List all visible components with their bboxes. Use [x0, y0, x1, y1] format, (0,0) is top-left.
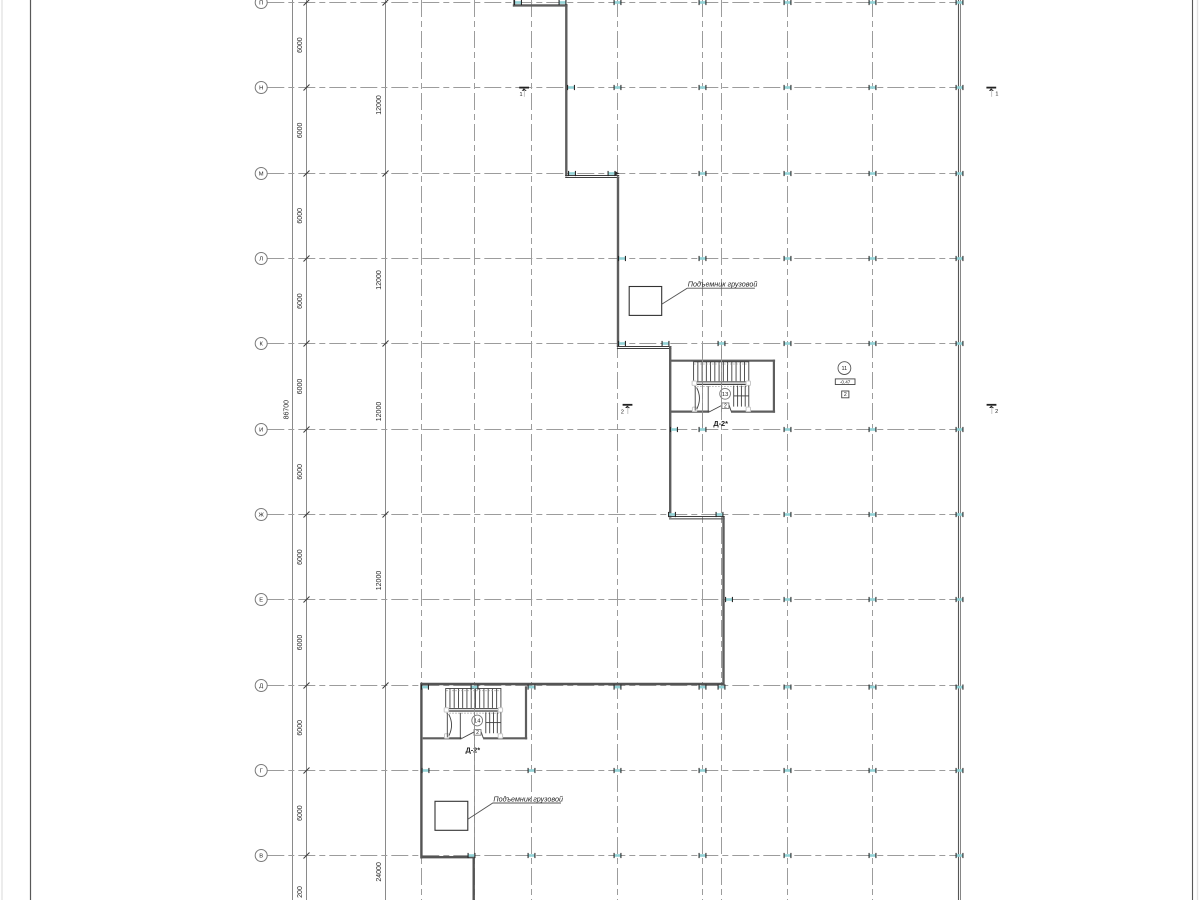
svg-text:11: 11 — [842, 366, 848, 372]
svg-text:И: И — [259, 428, 263, 434]
svg-text:6000: 6000 — [297, 720, 304, 736]
svg-text:Н: Н — [259, 86, 263, 92]
svg-text:86700: 86700 — [283, 400, 290, 420]
svg-text:2: 2 — [995, 409, 998, 415]
svg-text:Ж: Ж — [259, 513, 265, 519]
svg-text:24000: 24000 — [376, 862, 383, 882]
svg-text:2: 2 — [844, 392, 847, 398]
svg-text:-0.47: -0.47 — [840, 379, 851, 384]
svg-text:Подъемник грузовой: Подъемник грузовой — [493, 794, 563, 803]
svg-text:Д-2*: Д-2* — [465, 746, 480, 755]
svg-text:13: 13 — [722, 392, 728, 398]
svg-text:2: 2 — [724, 404, 727, 410]
svg-text:6000: 6000 — [297, 635, 304, 651]
svg-text:12000: 12000 — [376, 270, 383, 290]
svg-text:2: 2 — [621, 409, 624, 415]
svg-text:Д-2*: Д-2* — [713, 419, 728, 428]
svg-text:12000: 12000 — [376, 402, 383, 422]
svg-text:6000: 6000 — [297, 37, 304, 53]
svg-text:К: К — [260, 342, 264, 348]
svg-text:14: 14 — [474, 719, 481, 725]
svg-text:6000: 6000 — [297, 805, 304, 821]
svg-text:Л: Л — [259, 257, 263, 263]
svg-text:2: 2 — [476, 730, 479, 736]
svg-text:12000: 12000 — [376, 571, 383, 591]
svg-text:В: В — [259, 854, 263, 860]
svg-text:200: 200 — [297, 886, 304, 898]
svg-text:1: 1 — [995, 92, 998, 98]
svg-text:Д: Д — [259, 684, 263, 690]
svg-text:6000: 6000 — [297, 123, 304, 139]
svg-text:6000: 6000 — [297, 208, 304, 224]
svg-text:Е: Е — [259, 598, 263, 604]
svg-text:М: М — [259, 172, 264, 178]
svg-text:П: П — [259, 1, 263, 7]
svg-text:Подъемник грузовой: Подъемник грузовой — [688, 280, 758, 289]
svg-text:6000: 6000 — [297, 379, 304, 395]
svg-text:12000: 12000 — [376, 95, 383, 115]
svg-text:6000: 6000 — [297, 549, 304, 565]
svg-text:6000: 6000 — [297, 464, 304, 480]
svg-text:1: 1 — [519, 92, 522, 98]
svg-text:6000: 6000 — [297, 293, 304, 309]
